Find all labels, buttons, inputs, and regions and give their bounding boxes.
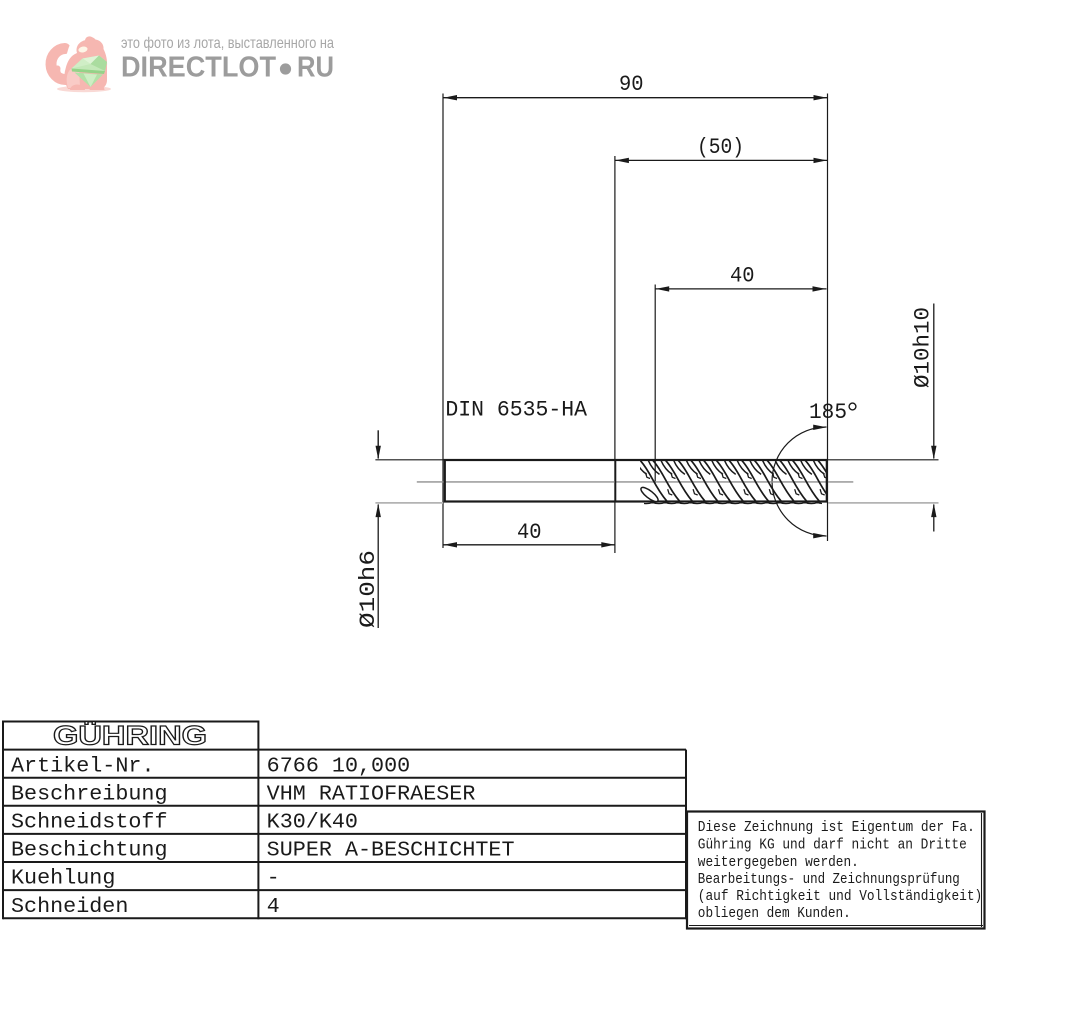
svg-text:DIN 6535-HA: DIN 6535-HA	[445, 398, 587, 423]
svg-text:Beschreibung: Beschreibung	[11, 782, 168, 806]
svg-text:40: 40	[730, 264, 755, 289]
svg-text:Kuehlung: Kuehlung	[11, 867, 115, 891]
svg-text:185: 185	[809, 400, 847, 425]
svg-text:Schneiden: Schneiden	[11, 895, 128, 919]
svg-text:VHM RATIOFRAESER: VHM RATIOFRAESER	[267, 782, 476, 806]
svg-text:obliegen dem Kunden.: obliegen dem Kunden.	[698, 905, 851, 922]
svg-text:6766 10,000: 6766 10,000	[267, 754, 411, 778]
svg-text:Schneidstoff: Schneidstoff	[11, 811, 168, 835]
svg-text:weitergegeben werden.: weitergegeben werden.	[698, 854, 859, 871]
svg-text:Gühring KG und darf nicht an D: Gühring KG und darf nicht an Dritte	[698, 836, 967, 853]
svg-text:90: 90	[619, 72, 644, 97]
svg-text:40: 40	[517, 520, 542, 545]
svg-text:RU: RU	[297, 52, 334, 84]
svg-text:DIRECTLOT: DIRECTLOT	[121, 52, 276, 84]
svg-text:-: -	[267, 867, 280, 891]
svg-text:(50): (50)	[697, 135, 744, 160]
svg-text:K30/K40: K30/K40	[267, 811, 358, 835]
svg-text:Diese Zeichnung ist Eigentum d: Diese Zeichnung ist Eigentum der Fa.	[698, 819, 975, 836]
svg-text:Ø10h10: Ø10h10	[911, 307, 936, 388]
svg-text:Bearbeitungs- und Zeichnungspr: Bearbeitungs- und Zeichnungsprüfung	[698, 871, 960, 888]
svg-text:Beschichtung: Beschichtung	[11, 839, 168, 863]
svg-text:4: 4	[267, 895, 280, 919]
svg-text:Ø10h6: Ø10h6	[356, 550, 381, 628]
svg-text:SUPER A-BESCHICHTET: SUPER A-BESCHICHTET	[267, 839, 515, 863]
svg-text:GÜHRING: GÜHRING	[53, 721, 207, 751]
svg-text:(auf Richtigkeit und Vollständ: (auf Richtigkeit und Vollständigkeit)	[698, 888, 982, 905]
svg-text:Artikel-Nr.: Artikel-Nr.	[11, 754, 155, 778]
svg-text:это фото из лота, выставленног: это фото из лота, выставленного на	[121, 35, 334, 52]
